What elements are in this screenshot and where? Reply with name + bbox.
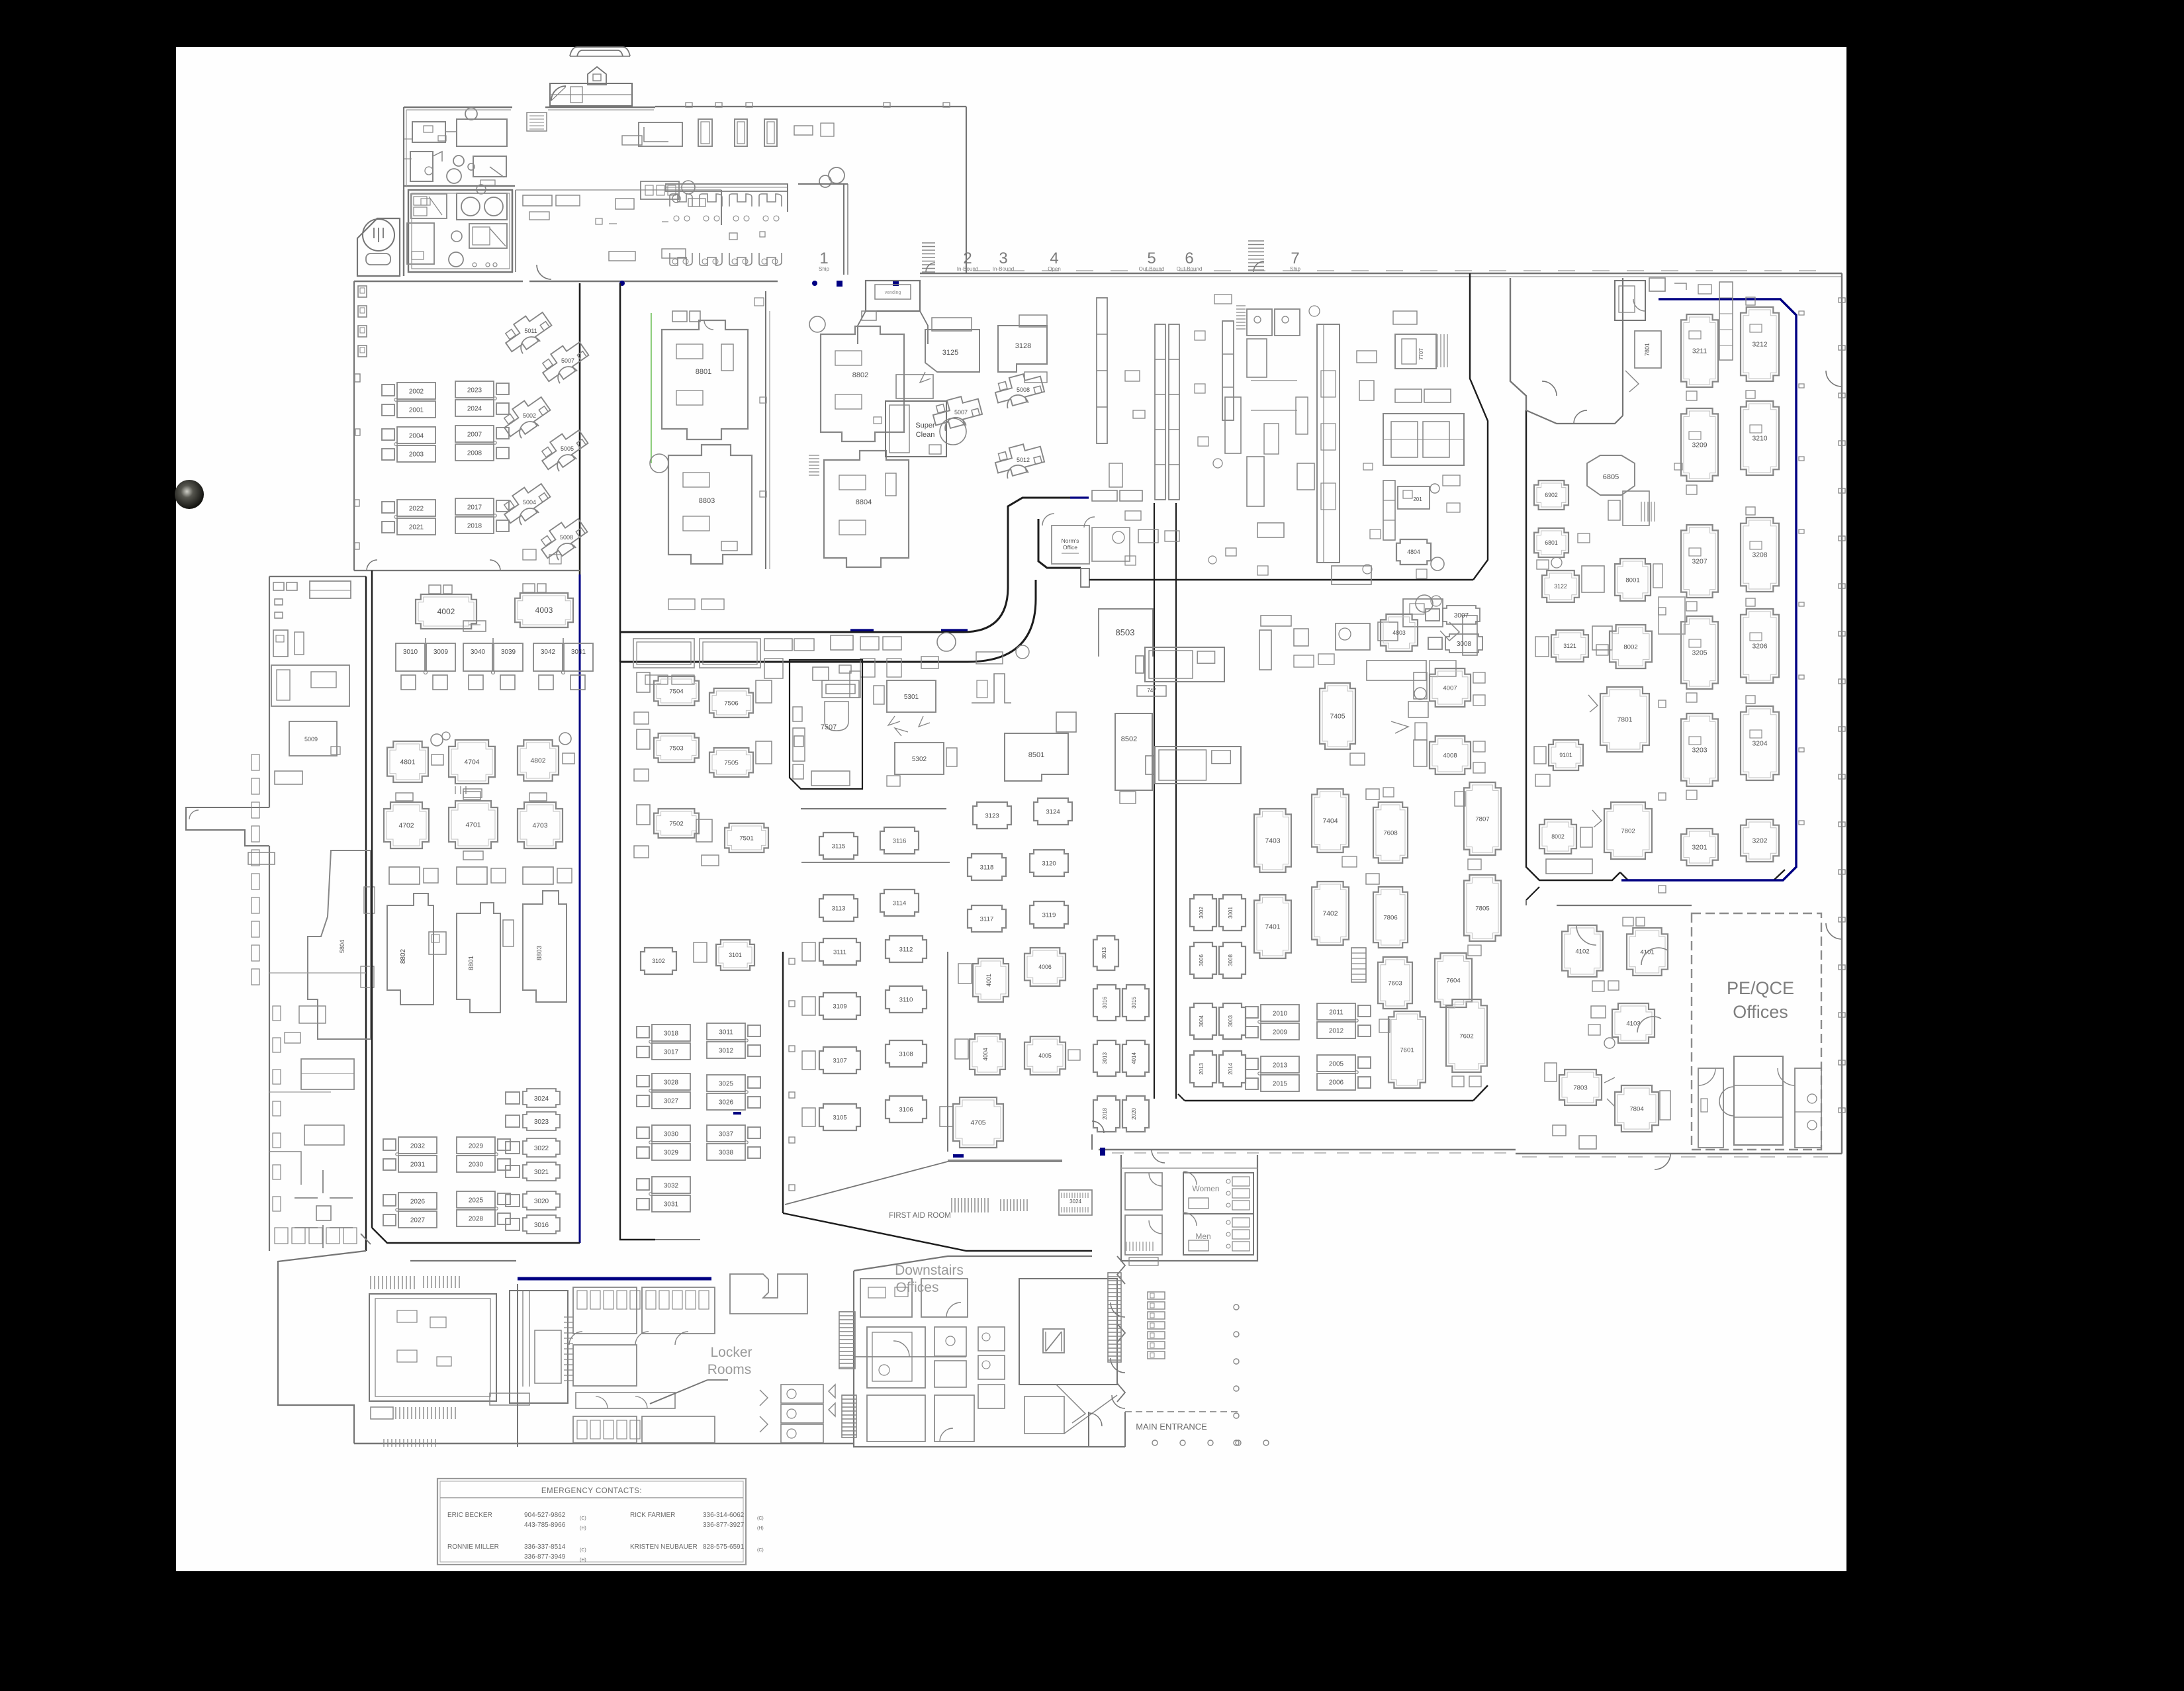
svg-text:4705: 4705 [970, 1120, 985, 1127]
svg-text:3027: 3027 [664, 1098, 679, 1105]
svg-text:2031: 2031 [410, 1162, 426, 1169]
svg-text:4703: 4703 [532, 823, 547, 830]
svg-text:6801: 6801 [1545, 539, 1558, 546]
svg-text:(C): (C) [580, 1516, 586, 1521]
svg-text:2027: 2027 [410, 1217, 426, 1224]
svg-text:(C): (C) [580, 1548, 586, 1553]
svg-text:4801: 4801 [400, 759, 415, 766]
svg-text:3009: 3009 [433, 649, 449, 656]
svg-text:5301: 5301 [904, 694, 919, 701]
svg-text:(C): (C) [757, 1516, 764, 1521]
svg-text:3010: 3010 [403, 649, 418, 656]
svg-text:7804: 7804 [1629, 1105, 1644, 1113]
svg-text:3026: 3026 [719, 1099, 734, 1107]
svg-text:2023: 2023 [467, 387, 482, 394]
svg-text:201: 201 [1413, 496, 1422, 502]
svg-text:5005: 5005 [561, 445, 574, 452]
svg-text:7601: 7601 [1400, 1046, 1414, 1054]
svg-text:4005: 4005 [1038, 1052, 1052, 1059]
svg-text:3025: 3025 [719, 1081, 734, 1088]
svg-text:3113: 3113 [832, 905, 846, 912]
svg-text:7801: 7801 [1644, 343, 1651, 356]
svg-text:2030: 2030 [469, 1162, 484, 1169]
svg-text:3018: 3018 [664, 1030, 679, 1038]
svg-text:3207: 3207 [1692, 559, 1707, 566]
svg-text:7805: 7805 [1475, 905, 1489, 912]
svg-text:Rooms: Rooms [707, 1362, 752, 1377]
svg-text:7501: 7501 [739, 835, 753, 842]
svg-text:7505: 7505 [724, 759, 738, 766]
svg-text:3118: 3118 [980, 864, 994, 871]
svg-text:3012: 3012 [719, 1048, 734, 1055]
svg-text:2010: 2010 [1273, 1011, 1288, 1018]
svg-text:3040: 3040 [471, 649, 486, 656]
svg-text:2029: 2029 [469, 1143, 484, 1150]
svg-text:(C): (C) [757, 1548, 764, 1553]
svg-text:3002: 3002 [1199, 907, 1205, 919]
svg-text:7403: 7403 [1265, 838, 1280, 845]
svg-text:4803: 4803 [1392, 629, 1406, 636]
svg-text:3101: 3101 [729, 952, 742, 958]
svg-text:3029: 3029 [664, 1150, 679, 1157]
svg-text:3015: 3015 [1131, 997, 1137, 1009]
svg-text:8502: 8502 [1121, 735, 1137, 743]
svg-text:3011: 3011 [719, 1029, 733, 1036]
svg-text:4: 4 [1050, 250, 1058, 267]
svg-text:4014: 4014 [1131, 1052, 1137, 1064]
svg-text:5012: 5012 [1017, 457, 1030, 463]
svg-text:7404: 7404 [1322, 818, 1338, 825]
svg-text:3038: 3038 [719, 1150, 734, 1157]
svg-text:3: 3 [999, 250, 1007, 267]
svg-text:8503: 8503 [1116, 627, 1135, 637]
svg-text:Ship: Ship [819, 266, 830, 272]
svg-text:3107: 3107 [833, 1057, 846, 1064]
svg-text:3209: 3209 [1692, 442, 1707, 449]
svg-text:2004: 2004 [409, 433, 424, 440]
svg-text:4701: 4701 [465, 822, 480, 829]
svg-text:3109: 3109 [833, 1003, 846, 1010]
svg-text:3003: 3003 [1228, 1015, 1234, 1027]
svg-text:3006: 3006 [1199, 954, 1205, 966]
svg-text:5011: 5011 [524, 328, 537, 334]
svg-text:3203: 3203 [1692, 747, 1707, 754]
svg-text:336-877-3949: 336-877-3949 [524, 1553, 566, 1561]
svg-text:3008: 3008 [1228, 954, 1234, 966]
svg-text:2008: 2008 [467, 450, 482, 457]
svg-text:3206: 3206 [1752, 643, 1767, 651]
svg-text:5004: 5004 [523, 499, 536, 506]
svg-text:3021: 3021 [534, 1169, 549, 1176]
svg-text:7801: 7801 [1617, 717, 1632, 724]
svg-text:3121: 3121 [1563, 643, 1576, 649]
svg-text:7802: 7802 [1621, 827, 1635, 835]
svg-text:4003: 4003 [535, 606, 553, 615]
svg-text:336-314-6062: 336-314-6062 [703, 1512, 745, 1519]
svg-text:8803: 8803 [699, 497, 715, 505]
svg-text:2001: 2001 [409, 407, 424, 414]
svg-text:2002: 2002 [409, 388, 424, 396]
svg-text:MAIN ENTRANCE: MAIN ENTRANCE [1136, 1422, 1207, 1432]
svg-text:3112: 3112 [899, 946, 913, 953]
svg-text:2003: 2003 [409, 451, 424, 459]
svg-text:RONNIE MILLER: RONNIE MILLER [447, 1543, 499, 1551]
svg-text:4006: 4006 [1038, 964, 1052, 970]
svg-text:4004: 4004 [982, 1048, 989, 1061]
svg-text:3212: 3212 [1752, 342, 1767, 349]
svg-text:Norm's: Norm's [1062, 537, 1079, 544]
svg-text:7803: 7803 [1573, 1084, 1587, 1091]
svg-text:8801: 8801 [468, 955, 475, 970]
svg-text:2014: 2014 [1228, 1063, 1234, 1075]
svg-text:4704: 4704 [464, 759, 479, 766]
svg-text:2009: 2009 [1273, 1029, 1288, 1036]
svg-text:Clean: Clean [916, 431, 935, 439]
svg-text:8002: 8002 [1551, 833, 1565, 840]
svg-text:7402: 7402 [1322, 911, 1338, 918]
svg-text:4804: 4804 [1407, 549, 1420, 555]
svg-text:3020: 3020 [534, 1198, 549, 1205]
svg-text:EMERGENCY CONTACTS:: EMERGENCY CONTACTS: [541, 1487, 642, 1495]
svg-text:2007: 2007 [467, 432, 482, 439]
svg-text:3037: 3037 [719, 1131, 734, 1138]
svg-text:3023: 3023 [534, 1119, 549, 1126]
svg-text:3110: 3110 [899, 996, 913, 1003]
svg-text:3031: 3031 [664, 1201, 679, 1209]
svg-text:ERIC BECKER: ERIC BECKER [447, 1512, 492, 1519]
svg-text:Locker: Locker [710, 1345, 752, 1360]
svg-text:5009: 5009 [304, 736, 318, 743]
svg-text:5007: 5007 [561, 357, 574, 364]
svg-text:6805: 6805 [1603, 473, 1619, 481]
svg-text:5007: 5007 [954, 409, 968, 416]
svg-text:2005: 2005 [1329, 1061, 1344, 1068]
svg-text:2018: 2018 [1102, 1108, 1108, 1120]
svg-text:5804: 5804 [339, 940, 345, 953]
svg-text:3125: 3125 [942, 349, 958, 357]
svg-text:PE/QCE: PE/QCE [1727, 978, 1794, 998]
svg-text:8002: 8002 [1623, 643, 1637, 651]
svg-text:FIRST AID ROOM: FIRST AID ROOM [889, 1212, 951, 1220]
svg-text:3204: 3204 [1752, 741, 1767, 748]
svg-text:4802: 4802 [530, 758, 545, 765]
svg-text:7707: 7707 [1418, 348, 1424, 360]
svg-text:8804: 8804 [856, 498, 872, 506]
svg-text:2013: 2013 [1273, 1062, 1288, 1070]
svg-text:2012: 2012 [1329, 1028, 1344, 1035]
svg-text:2015: 2015 [1273, 1081, 1288, 1088]
svg-text:3001: 3001 [1228, 907, 1234, 919]
svg-text:443-785-8966: 443-785-8966 [524, 1522, 566, 1529]
svg-text:6: 6 [1185, 250, 1193, 267]
svg-text:3032: 3032 [664, 1183, 679, 1190]
svg-text:3124: 3124 [1046, 808, 1060, 815]
svg-text:4002: 4002 [437, 607, 455, 616]
svg-text:3004: 3004 [1199, 1015, 1205, 1027]
svg-text:3208: 3208 [1752, 552, 1767, 559]
svg-text:Men: Men [1195, 1232, 1210, 1241]
svg-text:3205: 3205 [1692, 650, 1707, 657]
svg-text:4102: 4102 [1575, 948, 1589, 955]
svg-text:2006: 2006 [1329, 1079, 1344, 1087]
svg-text:2026: 2026 [410, 1199, 426, 1206]
svg-text:8501: 8501 [1028, 751, 1044, 759]
svg-text:7602: 7602 [1459, 1032, 1473, 1040]
svg-text:3202: 3202 [1752, 838, 1767, 845]
svg-text:4702: 4702 [398, 823, 414, 830]
svg-text:5008: 5008 [560, 534, 573, 541]
svg-text:7806: 7806 [1383, 914, 1397, 921]
svg-text:Offices: Offices [1733, 1002, 1788, 1022]
svg-text:5: 5 [1147, 250, 1156, 267]
svg-text:3105: 3105 [833, 1114, 846, 1121]
svg-text:2022: 2022 [409, 506, 424, 513]
svg-text:3123: 3123 [985, 812, 999, 819]
svg-text:(H): (H) [580, 1526, 586, 1531]
svg-text:2018: 2018 [467, 523, 482, 530]
svg-text:5302: 5302 [912, 756, 927, 763]
svg-text:RICK FARMER: RICK FARMER [630, 1512, 675, 1519]
svg-text:8001: 8001 [1625, 576, 1639, 584]
svg-text:8803: 8803 [536, 945, 543, 960]
svg-text:7504: 7504 [669, 688, 684, 695]
svg-text:6902: 6902 [1545, 492, 1558, 498]
svg-text:vending: vending [885, 291, 901, 295]
svg-text:3210: 3210 [1752, 435, 1767, 443]
svg-text:7506: 7506 [724, 700, 738, 707]
svg-text:3041: 3041 [571, 649, 586, 656]
svg-text:3115: 3115 [832, 843, 846, 850]
svg-text:3042: 3042 [541, 649, 556, 656]
svg-text:3016: 3016 [534, 1222, 549, 1229]
svg-text:Office: Office [1063, 544, 1077, 551]
svg-text:3028: 3028 [664, 1079, 679, 1087]
svg-text:3013: 3013 [1102, 1052, 1108, 1064]
svg-text:2020: 2020 [1131, 1108, 1137, 1120]
svg-text:3120: 3120 [1042, 860, 1056, 867]
svg-text:3102: 3102 [652, 958, 665, 964]
svg-text:2025: 2025 [469, 1197, 484, 1205]
svg-text:7604: 7604 [1446, 977, 1461, 984]
svg-text:7: 7 [1291, 250, 1299, 267]
svg-text:7503: 7503 [669, 745, 683, 752]
svg-text:8802: 8802 [852, 371, 868, 379]
svg-text:8801: 8801 [696, 368, 711, 376]
svg-text:3128: 3128 [1015, 342, 1031, 350]
svg-text:336-337-8514: 336-337-8514 [524, 1543, 566, 1551]
svg-text:3119: 3119 [1042, 911, 1056, 919]
svg-text:9101: 9101 [1559, 752, 1572, 758]
svg-text:8802: 8802 [400, 948, 407, 964]
svg-text:1: 1 [819, 250, 828, 267]
svg-text:3022: 3022 [534, 1145, 549, 1152]
svg-text:3117: 3117 [980, 915, 994, 923]
svg-text:7603: 7603 [1388, 980, 1402, 987]
svg-text:3024: 3024 [534, 1095, 549, 1103]
svg-text:2024: 2024 [467, 406, 482, 413]
svg-text:7608: 7608 [1383, 829, 1397, 837]
svg-text:336-877-3927: 336-877-3927 [703, 1522, 745, 1529]
svg-text:3106: 3106 [899, 1106, 913, 1113]
svg-text:2013: 2013 [1199, 1063, 1205, 1075]
svg-text:3122: 3122 [1554, 583, 1567, 590]
svg-text:3114: 3114 [893, 899, 907, 907]
svg-text:3007: 3007 [1454, 612, 1469, 619]
svg-text:3201: 3201 [1692, 845, 1707, 852]
svg-text:3017: 3017 [664, 1049, 679, 1056]
svg-text:828-575-6591: 828-575-6591 [703, 1543, 745, 1551]
svg-text:Downstairs: Downstairs [895, 1263, 964, 1278]
svg-text:3016: 3016 [1102, 997, 1108, 1009]
svg-text:3039: 3039 [501, 649, 516, 656]
svg-text:7405: 7405 [1330, 713, 1345, 721]
svg-text:5008: 5008 [1017, 387, 1030, 393]
svg-text:2011: 2011 [1329, 1009, 1343, 1017]
svg-text:3008: 3008 [1457, 641, 1472, 648]
svg-text:2017: 2017 [467, 504, 482, 512]
svg-text:KRISTEN NEUBAUER: KRISTEN NEUBAUER [630, 1543, 698, 1551]
svg-text:Super: Super [915, 422, 935, 430]
svg-text:7502: 7502 [669, 820, 683, 827]
svg-text:4001: 4001 [985, 974, 992, 987]
svg-text:(H): (H) [757, 1526, 764, 1531]
svg-text:3030: 3030 [664, 1131, 679, 1138]
svg-text:4007: 4007 [1443, 684, 1457, 692]
svg-text:7807: 7807 [1475, 815, 1489, 823]
svg-text:5002: 5002 [523, 412, 536, 419]
svg-text:4008: 4008 [1443, 752, 1457, 759]
svg-text:3111: 3111 [833, 948, 846, 956]
svg-text:3116: 3116 [893, 837, 907, 845]
svg-text:747: 747 [1147, 688, 1156, 694]
svg-text:2021: 2021 [409, 524, 424, 531]
svg-text:Women: Women [1192, 1184, 1219, 1193]
svg-text:(H): (H) [580, 1558, 586, 1563]
svg-text:7401: 7401 [1265, 924, 1280, 931]
svg-text:3108: 3108 [899, 1050, 913, 1058]
svg-text:904-527-9862: 904-527-9862 [524, 1512, 566, 1519]
svg-text:3013: 3013 [1101, 947, 1107, 959]
svg-text:3211: 3211 [1692, 348, 1707, 355]
svg-text:2: 2 [963, 250, 972, 267]
svg-text:2028: 2028 [469, 1216, 484, 1223]
svg-text:2032: 2032 [410, 1143, 426, 1150]
svg-text:3024: 3024 [1069, 1199, 1081, 1205]
